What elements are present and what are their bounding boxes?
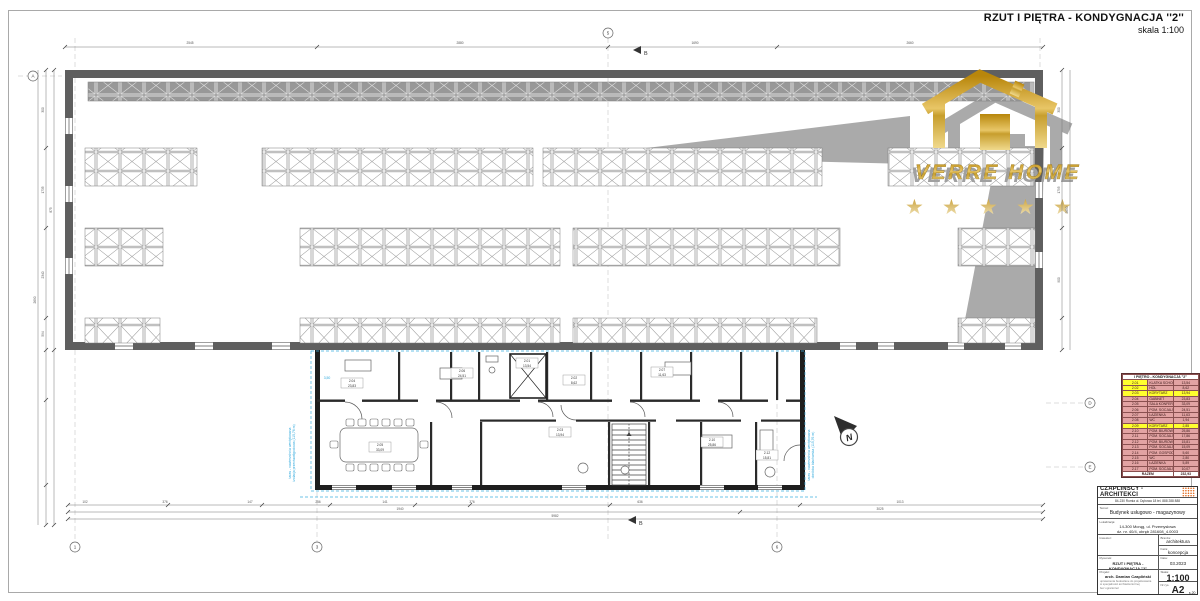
room-label: 2.0533,09 xyxy=(369,442,391,452)
dim-label: 2880 xyxy=(456,41,463,45)
room-number: 2.06 xyxy=(459,369,465,373)
dimension-lines xyxy=(38,45,1070,527)
dim-label: 1795 xyxy=(1057,186,1061,193)
room-area: 33,09 xyxy=(376,448,384,452)
dim-label: 2340 xyxy=(41,271,45,278)
dim-label: 594 xyxy=(41,331,45,337)
room-number: 2.03 xyxy=(557,428,563,432)
studio-address: 84-230 Rumia ul. Dębowa 18 tel. 888 288 … xyxy=(1098,498,1197,505)
room-area: 13,54 xyxy=(523,364,531,368)
schedule-row: 2.05SALA KONFERENCYJNA33,09 xyxy=(1123,401,1199,406)
room-label: 2.0711,63 xyxy=(651,367,673,377)
blue-annotation: izolacja przeciwwilgociowa (115,76 m) xyxy=(292,424,296,481)
room-number: 2.01 xyxy=(524,359,530,363)
axis-bubble-label: E xyxy=(1088,465,1091,470)
dim-label: 900 xyxy=(1057,277,1061,283)
stairs xyxy=(612,424,646,485)
date-value: 03.2023 xyxy=(1159,561,1197,566)
star-icon: ★ xyxy=(1016,196,1035,219)
location-line2: dz. nr. 40/4, obręb 281608_4.0003 xyxy=(1098,529,1197,534)
schedule-row: 2.12POM. BIUROWE / SOCJALNE15,81 xyxy=(1123,439,1199,444)
dim-label: 102 xyxy=(82,500,88,504)
room-area: 25,86 xyxy=(708,443,716,447)
project-subject: Budynek usługowo - magazynowy xyxy=(1098,510,1197,516)
star-icons: ★ ★ ★ ★ ★ xyxy=(905,196,1072,219)
sheet-title: RZUT I PIĘTRA - KONDYGNACJA ''2'' skala … xyxy=(984,12,1184,35)
star-icon: ★ xyxy=(905,196,924,219)
studio-logo-icon xyxy=(1182,487,1195,497)
dim-label: 5982 xyxy=(551,514,558,518)
axis-bubble: 5 xyxy=(603,28,613,38)
axis-bubble-label: A xyxy=(31,74,34,79)
sheet-number-sub: s.20 xyxy=(1189,591,1196,595)
room-number: 2.02 xyxy=(571,376,577,380)
section-label: B xyxy=(639,521,643,527)
dim-label: 147 xyxy=(247,500,253,504)
axis-bubble: 3 xyxy=(312,542,322,552)
schedule-row: 2.09KORYTARZ2,85 xyxy=(1123,423,1199,428)
schedule-row: 2.17POM. SOCJALNE10,07 xyxy=(1123,466,1199,471)
dim-label: 636 xyxy=(637,500,643,504)
north-arrow: N xyxy=(834,416,858,446)
schedule-total-row: RAZEM232,93 xyxy=(1123,472,1199,477)
room-number: 2.05 xyxy=(377,443,383,447)
legend-table-body: 2.01KLATKA SCHODOWA13,542.02HOL8,622.03K… xyxy=(1123,380,1199,477)
rysunek-label: Rysunek: xyxy=(1100,556,1113,560)
room-label: 2.028,62 xyxy=(563,375,585,385)
drawing-title: RZUT I PIĘTRA - KONDYGNACJA ''2'' xyxy=(984,12,1184,24)
star-icon: ★ xyxy=(942,196,961,219)
room-area: 23,83 xyxy=(348,384,356,388)
drawing-scale: skala 1:100 xyxy=(984,25,1184,35)
axis-bubble: E xyxy=(1085,462,1095,472)
room-label: 2.0624,51 xyxy=(451,368,473,378)
schedule-row: 2.06POM. SOCJALNE / BIUROWE24,51 xyxy=(1123,407,1199,412)
schedule-row: 2.01KLATKA SCHODOWA13,54 xyxy=(1123,380,1199,385)
dim-label: 2660 xyxy=(906,41,913,45)
room-area: 24,51 xyxy=(458,374,466,378)
dim-label: 141 xyxy=(382,500,388,504)
axis-bubble: D xyxy=(1085,398,1095,408)
room-area: 11,63 xyxy=(658,373,666,377)
room-area: 15,81 xyxy=(763,456,771,460)
schedule-row: 2.04GABINET23,83 xyxy=(1123,396,1199,401)
room-schedule-table: I PIĘTRO - KONDYGNACJA ''2'' 2.01KLATKA … xyxy=(1121,373,1200,478)
dim-label: 1735 xyxy=(41,186,45,193)
axis-bubble: 1 xyxy=(70,542,80,552)
room-label: 2.1215,81 xyxy=(756,450,778,460)
dim-label: 300 xyxy=(1057,107,1061,113)
dim-label: 2690 xyxy=(1065,206,1069,213)
star-icon: ★ xyxy=(979,196,998,219)
dim-label: 1690 xyxy=(691,41,698,45)
schedule-row: 2.10POM. BIUROWE / SOCJALNE25,86 xyxy=(1123,428,1199,433)
blue-annotation: obróbka blacharska (115,76 m) xyxy=(811,432,815,479)
room-label: 2.0313,94 xyxy=(549,427,571,437)
blue-annotation: 3,50 xyxy=(324,376,331,380)
drawing-sheet: RZUT I PIĘTRA - KONDYGNACJA ''2'' skala … xyxy=(0,0,1200,601)
schedule-row: 2.16ŁAZIENKA5,89 xyxy=(1123,461,1199,466)
warehouse-walls xyxy=(65,70,1043,350)
room-number: 2.12 xyxy=(764,451,770,455)
temat-label: Temat: xyxy=(1100,506,1109,510)
room-label: 2.0423,83 xyxy=(341,378,363,388)
data-label: Data: xyxy=(1161,556,1168,560)
schedule-row: 2.14POM. GOSPODARCZE5,60 xyxy=(1123,450,1199,455)
room-number: 2.07 xyxy=(659,368,665,372)
dim-label: 376 xyxy=(162,500,168,504)
dim-label: 2690 xyxy=(33,296,37,303)
dim-label: 875 xyxy=(49,207,53,213)
room-area: 8,62 xyxy=(571,381,577,385)
floor-plan-svg: VERRE HOME VERRE HOME ★ ★ ★ ★ ★ xyxy=(0,0,1200,601)
schedule-row: 2.11POM. SOCJALNE / BIUROWE17,86 xyxy=(1123,434,1199,439)
schedule-row: 2.03KORYTARZ13,94 xyxy=(1123,391,1199,396)
dim-label: 1013 xyxy=(896,500,903,504)
furniture xyxy=(330,356,775,477)
room-label: 2.0113,54 xyxy=(516,358,538,368)
dim-label: 256 xyxy=(315,500,321,504)
room-number: 2.10 xyxy=(709,438,715,442)
axis-bubble: 6 xyxy=(772,542,782,552)
office-block xyxy=(300,350,817,497)
dim-label: 3025 xyxy=(876,507,883,511)
dim-label: 1940 xyxy=(396,507,403,511)
star-icon: ★ xyxy=(1053,196,1072,219)
schedule-row: 2.13POM. SOCJALNE / BIUROWE15,09 xyxy=(1123,445,1199,450)
branza-value: architektura xyxy=(1159,539,1197,544)
axis-bubble: A xyxy=(28,71,38,81)
section-label: B xyxy=(644,51,648,57)
title-block: CZAPLIŃSCY - ARCHITEKCI 84-230 Rumia ul.… xyxy=(1097,486,1198,595)
brand-text: VERRE HOME xyxy=(915,161,1081,184)
dim-label: 300 xyxy=(41,107,45,113)
schedule-row: 2.07ŁAZIENKA11,63 xyxy=(1123,412,1199,417)
scale-value: 1:100 xyxy=(1159,573,1197,583)
room-number: 2.04 xyxy=(349,379,355,383)
room-label: 2.1025,86 xyxy=(701,437,723,447)
projekt-label: Projekt: xyxy=(1100,570,1110,574)
dim-label: 2545 xyxy=(186,41,193,45)
dim-label: 376 xyxy=(469,500,475,504)
inwestor-label: Inwestor: xyxy=(1100,536,1112,540)
studio-name: CZAPLIŃSCY - ARCHITEKCI xyxy=(1100,487,1182,498)
architect-credentials: uprawnienia budowlane do projektowania w… xyxy=(1100,580,1151,590)
room-area: 13,94 xyxy=(556,433,564,437)
